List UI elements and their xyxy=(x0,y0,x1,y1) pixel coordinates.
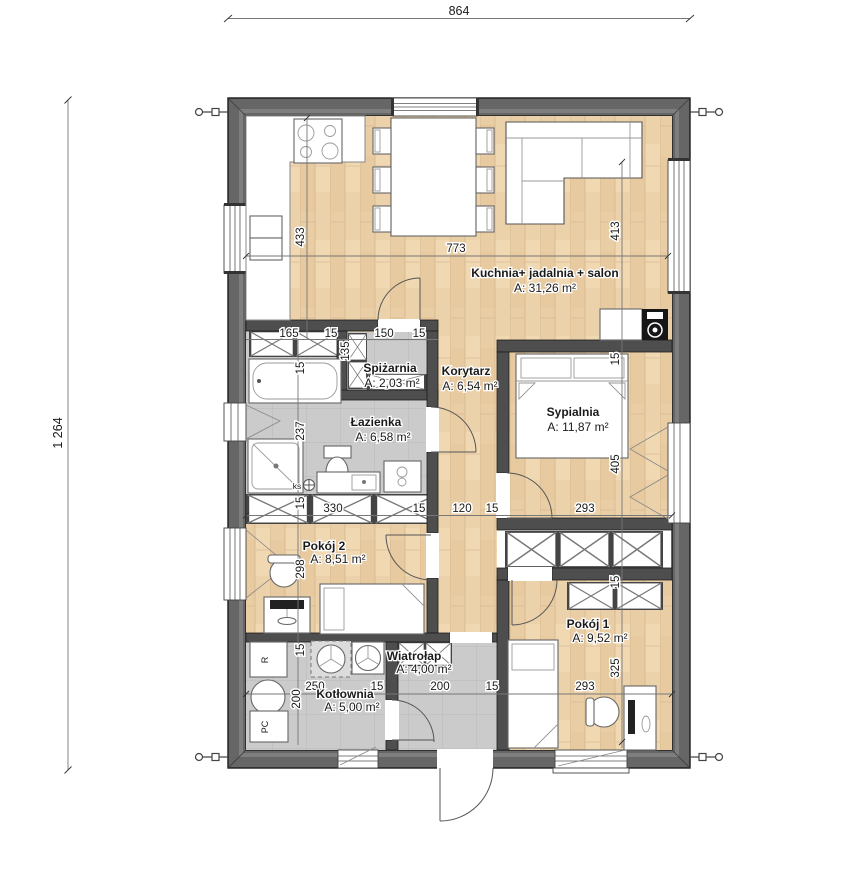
dimension-label: 1 264 xyxy=(51,417,65,448)
room-name-label: Spiżarnia xyxy=(363,361,417,375)
boiler-icon xyxy=(251,680,285,714)
dimension-label: 15 xyxy=(610,576,622,589)
room-name-label: Kuchnia+ jadalnia + salon xyxy=(471,266,618,280)
dimension-label: 293 xyxy=(575,681,594,693)
pc-unit-label: PC xyxy=(260,720,270,733)
room-area-label: A: 6,58 m² xyxy=(355,430,410,444)
dimension-label: 773 xyxy=(446,243,465,255)
dimension-label: 15 xyxy=(413,503,426,515)
window-icon xyxy=(338,747,378,768)
dimension-label: 237 xyxy=(295,421,307,440)
passage-opening xyxy=(450,632,492,643)
room-area-label: A: 9,52 m² xyxy=(572,631,627,645)
dining-table-icon xyxy=(373,118,494,236)
dimension-label: 15 xyxy=(295,497,307,510)
dimension-label: 15 xyxy=(295,644,307,657)
room-area-label: A: 6,54 m² xyxy=(442,379,497,393)
dimension-label: 120 xyxy=(452,503,471,515)
room-area-label: A: 31,26 m² xyxy=(514,281,576,295)
drain-label: ks xyxy=(293,481,302,491)
floor-drain-icon xyxy=(304,480,315,491)
dimension-label: 150 xyxy=(374,328,393,340)
r-unit-label: R xyxy=(260,656,270,663)
dimension-label: 330 xyxy=(323,503,342,515)
room-name-label: Łazienka xyxy=(351,415,402,429)
dimension-label: 15 xyxy=(610,353,622,366)
dimension-label: 15 xyxy=(486,503,499,515)
dimension-label: 413 xyxy=(610,221,622,240)
entrance-door-icon xyxy=(437,749,493,821)
wall-anchor-icon xyxy=(690,109,723,116)
room-name-label: Korytarz xyxy=(442,364,491,378)
room-name-label: Wiatrołap xyxy=(387,649,442,663)
window-icon xyxy=(553,750,629,773)
room-area-label: A: 8,51 m² xyxy=(310,552,365,566)
room-name-label: Pokój 2 xyxy=(303,539,346,553)
dimension-label: 298 xyxy=(295,559,307,578)
cooktop-icon xyxy=(294,119,342,163)
window-icon xyxy=(391,98,479,116)
desk-icon xyxy=(264,597,310,633)
dimension-label: 15 xyxy=(486,681,499,693)
room-name-label: Kotłownia xyxy=(316,687,374,701)
dimension-label: 200 xyxy=(430,681,449,693)
room-area-label: A: 5,00 m² xyxy=(324,700,379,714)
wall-anchor-icon xyxy=(690,754,723,761)
window-icon xyxy=(668,158,690,294)
tv-console-icon xyxy=(600,309,668,340)
dimension-label: 405 xyxy=(610,454,622,473)
dimension-label: 864 xyxy=(449,4,470,18)
room-area-label: A: 11,87 m² xyxy=(547,420,608,434)
dimension-label: 15 xyxy=(325,328,338,340)
wall-anchor-icon xyxy=(196,109,229,116)
fridge-icon xyxy=(250,216,282,238)
dimension-label: 165 xyxy=(279,328,298,340)
room-area-label: A: 4,00 m² xyxy=(396,662,451,676)
desk-icon xyxy=(624,686,656,750)
dimension-label: 15 xyxy=(413,328,426,340)
fan-unit-icon xyxy=(352,642,384,674)
wall-anchor-icon xyxy=(196,754,229,761)
room-name-label: Sypialnia xyxy=(547,405,600,419)
room-name-label: Pokój 1 xyxy=(567,617,610,631)
desk-chair-icon xyxy=(586,697,619,727)
dimension-label: 135 xyxy=(340,341,352,360)
dimension-label: 200 xyxy=(291,689,303,708)
washing-machine-icon xyxy=(384,461,421,492)
fan-unit-icon xyxy=(311,641,351,677)
wardrobe-icon xyxy=(506,532,661,567)
dimension-label: 293 xyxy=(575,503,594,515)
dimension-label: 15 xyxy=(295,362,307,375)
room-area-label: A: 2,03 m² xyxy=(364,376,419,390)
dimension-label: 433 xyxy=(295,227,307,246)
dimension-label: 325 xyxy=(610,658,622,677)
floor-plan-page: R PC xyxy=(0,0,864,880)
floor-plan-canvas: R PC xyxy=(0,0,864,880)
single-bed-icon xyxy=(320,584,424,634)
sink-icon xyxy=(317,472,380,493)
